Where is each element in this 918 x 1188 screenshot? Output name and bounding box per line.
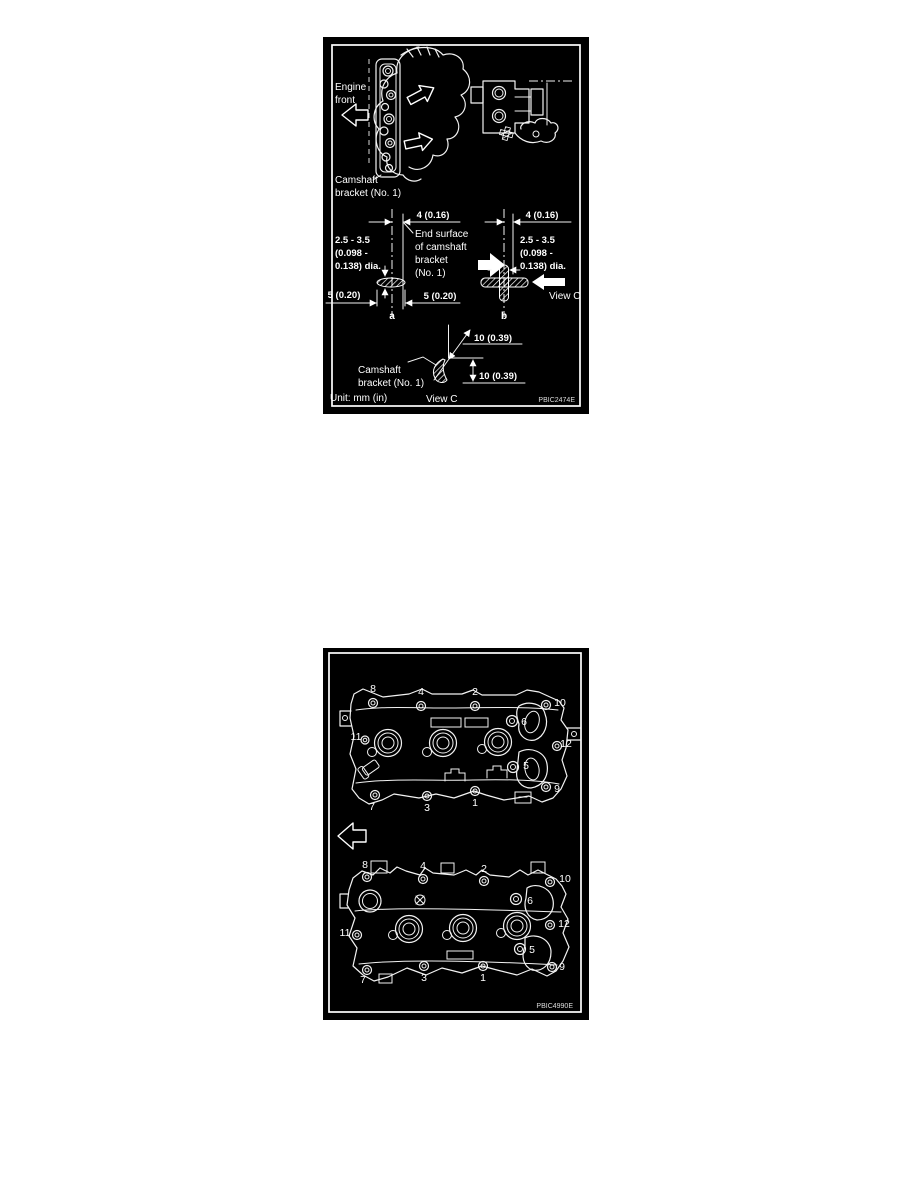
view-c-pointer-arrow	[532, 274, 565, 290]
figure-code: PBIC4990E	[536, 1003, 573, 1010]
spark-plug-tubes-bottom-view	[359, 890, 531, 943]
dim-10mm-vertical: 10 (0.39)	[479, 371, 517, 382]
dim-5mm-left: 5 (0.20)	[328, 290, 361, 301]
bolt-label-3-top: 3	[424, 802, 430, 814]
dim-dia-b-line1: 2.5 - 3.5	[520, 235, 556, 246]
gasket-bead-section-a	[377, 278, 405, 287]
dim-dia-a-line3: 0.138) dia.	[335, 261, 381, 272]
unit-label: Unit: mm (in)	[330, 393, 387, 404]
bolt-label-10-bottom: 10	[559, 873, 571, 885]
view-b-letter: b	[501, 311, 507, 322]
bolt-label-6-top: 6	[521, 716, 527, 728]
bolt-label-4-top: 4	[418, 686, 424, 698]
dim-dia-a-line1: 2.5 - 3.5	[335, 235, 371, 246]
camshaft-bracket-label-line1: Camshaft	[335, 175, 378, 186]
bolt-label-3-bottom: 3	[421, 972, 427, 984]
bolt-label-6-bottom: 6	[527, 895, 533, 907]
bolt-label-9-bottom: 9	[559, 961, 565, 973]
bolt-label-1-top: 1	[472, 797, 478, 809]
view-c-title: View C	[426, 394, 458, 405]
view-direction-arrow-lower	[403, 130, 434, 153]
gasket-bead-corner	[433, 359, 447, 382]
engine-front-view-drawing	[342, 47, 470, 181]
figure-rocker-cover-bolt-sequence: 8 4 2 10 11 6 12 5 9 7 3 1	[323, 648, 589, 1020]
dim-4mm-a: 4 (0.16)	[417, 210, 450, 221]
engine-front-arrow	[342, 104, 368, 126]
rocker-cover-bottom-view: 8 4 2 10 6 12 11 5 9 7 3 1	[340, 859, 571, 986]
engine-front-label-line1: Engine	[335, 82, 367, 93]
bolt-label-4-bottom: 4	[420, 860, 426, 872]
bolt-label-2-top: 2	[472, 686, 478, 698]
rocker-cover-top-view: 8 4 2 10 11 6 12 5 9 7 3 1	[340, 683, 581, 814]
gasket-bead-dimension-view-a: 4 (0.16) 2.5 - 3.5 (0.098 - 0.138) dia. …	[326, 209, 469, 322]
view-direction-arrow-upper	[405, 80, 438, 109]
bolt-label-2-bottom: 2	[481, 863, 487, 875]
dim-10mm-diagonal: 10 (0.39)	[474, 333, 512, 344]
end-surface-label-line3: bracket	[415, 255, 448, 266]
end-surface-label-line1: End surface	[415, 229, 469, 240]
filler-spout	[357, 758, 381, 780]
engine-front-direction-arrow	[338, 823, 366, 849]
camshaft-bracket-label-line2: bracket (No. 1)	[335, 188, 401, 199]
dim-dia-a-line2: (0.098 -	[335, 248, 368, 259]
bolt-label-12-bottom: 12	[558, 918, 570, 930]
view-c-pointer-label: View C	[549, 291, 581, 302]
gasket-bead-horizontal	[481, 278, 528, 287]
bolt-label-7-bottom: 7	[360, 974, 366, 986]
bolt-label-11-top: 11	[351, 731, 362, 743]
bolt-label-1-bottom: 1	[480, 972, 486, 984]
end-surface-label-line4: (No. 1)	[415, 268, 446, 279]
manual-page: Engine front Camshaft bracket (No. 1) 4 …	[0, 0, 918, 1188]
inner-frame	[329, 653, 581, 1012]
dim-dia-b-line2: (0.098 -	[520, 248, 553, 259]
bolt-label-11-bottom: 11	[340, 927, 351, 939]
bolt-label-10-top: 10	[554, 697, 566, 709]
engine-front-label-line2: front	[335, 95, 355, 106]
bolt-label-9-top: 9	[554, 783, 560, 795]
bolt-label-7-top: 7	[369, 801, 375, 813]
figure-camshaft-bracket-gasket: Engine front Camshaft bracket (No. 1) 4 …	[323, 37, 589, 414]
bolt-label-8-top: 8	[370, 683, 376, 695]
bolt-label-12-top: 12	[560, 738, 572, 750]
dim-5mm-right: 5 (0.20)	[424, 291, 457, 302]
camshaft-bracket-detail-label-line1: Camshaft	[358, 365, 401, 376]
bolt-label-5-bottom: 5	[529, 944, 535, 956]
view-a-letter: a	[389, 311, 395, 322]
end-surface-label-line2: of camshaft	[415, 242, 467, 253]
camshaft-bracket-detail-label-line2: bracket (No. 1)	[358, 378, 424, 389]
dim-dia-b-line3: 0.138) dia.	[520, 261, 566, 272]
bolt-label-5-top: 5	[523, 760, 529, 772]
camshaft-bracket-side-view-drawing	[471, 81, 573, 143]
figure-code: PBIC2474E	[538, 397, 575, 404]
dim-4mm-b: 4 (0.16)	[526, 210, 559, 221]
bolt-label-8-bottom: 8	[362, 859, 368, 871]
spark-plug-tubes-top-view	[368, 729, 512, 757]
